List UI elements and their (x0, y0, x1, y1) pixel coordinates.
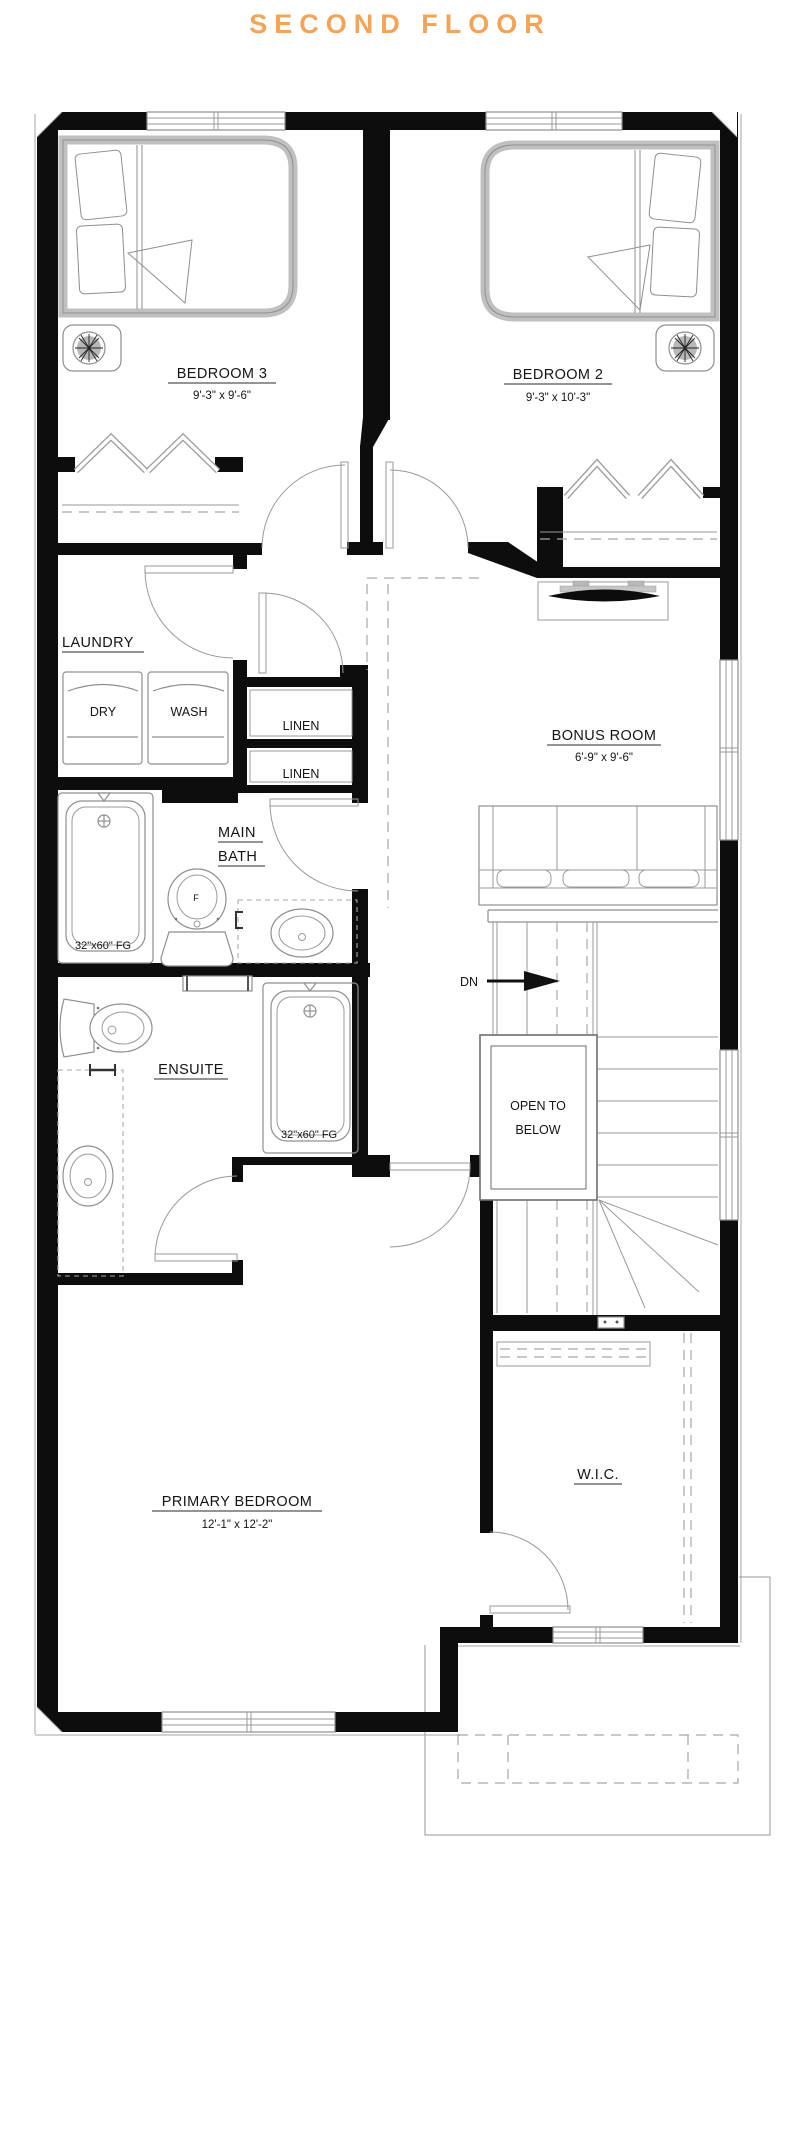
svg-text:32"x60" FG: 32"x60" FG (75, 940, 131, 952)
label-bedroom2: BEDROOM 2 9'-3" x 10'-3" (504, 367, 612, 404)
svg-text:MAIN: MAIN (218, 825, 256, 841)
label-linen-2: LINEN (283, 767, 320, 781)
label-primary-bedroom: PRIMARY BEDROOM 12'-1" x 12'-2" (152, 1494, 322, 1531)
svg-text:LINEN: LINEN (283, 767, 320, 781)
label-bedroom3: BEDROOM 3 9'-3" x 9'-6" (168, 366, 276, 402)
svg-text:WASH: WASH (170, 705, 207, 719)
door-bedroom2 (386, 462, 468, 548)
door-laundry (145, 566, 233, 658)
window-bedroom3 (147, 112, 285, 130)
svg-text:BELOW: BELOW (515, 1123, 560, 1137)
svg-text:6'-9" x 9'-6": 6'-9" x 9'-6" (575, 752, 633, 764)
svg-text:LAUNDRY: LAUNDRY (62, 635, 134, 651)
door-bath-hall (259, 593, 343, 673)
svg-text:OPEN TO: OPEN TO (510, 1099, 566, 1113)
svg-text:F: F (193, 893, 199, 903)
label-bonus-room: BONUS ROOM 6'-9" x 9'-6" (547, 728, 661, 764)
closet-bifold-doors (62, 437, 717, 539)
svg-text:LINEN: LINEN (283, 719, 320, 733)
label-dryer: DRY (90, 705, 117, 719)
svg-text:BONUS ROOM: BONUS ROOM (552, 728, 657, 744)
svg-text:DRY: DRY (90, 705, 117, 719)
label-dn: DN (460, 975, 478, 989)
door-bedroom3 (262, 462, 348, 548)
window-bonus-room (720, 660, 738, 840)
shared-wall-niche (183, 976, 252, 991)
label-laundry: LAUNDRY (62, 635, 144, 652)
door-main-bath (270, 799, 358, 891)
bifold-bedroom3 (76, 437, 218, 471)
window-wic (553, 1627, 643, 1643)
svg-text:W.I.C.: W.I.C. (577, 1467, 619, 1483)
stairs (367, 578, 718, 1315)
door-wic (490, 1532, 570, 1613)
ensuite-vanity (58, 1064, 123, 1276)
bifold-bedroom2 (566, 463, 702, 497)
label-ensuite: ENSUITE (154, 1062, 228, 1079)
window-primary-bedroom (162, 1712, 335, 1732)
main-bath-tub (58, 793, 153, 963)
svg-text:12'-1" x 12'-2": 12'-1" x 12'-2" (202, 1519, 273, 1531)
svg-text:BATH: BATH (218, 849, 257, 865)
label-washer: WASH (170, 705, 207, 719)
ceiling-fan-bedroom2 (656, 325, 714, 371)
ensuite-toilet (60, 999, 152, 1057)
label-main-bath: MAIN BATH (218, 825, 265, 866)
main-bath-vanity (236, 900, 357, 963)
page-title: SECOND FLOOR (249, 9, 551, 39)
bedroom2-bed (485, 145, 715, 317)
svg-text:PRIMARY BEDROOM: PRIMARY BEDROOM (162, 1494, 313, 1510)
floor-plan-canvas: SECOND FLOOR (0, 0, 800, 2150)
ceiling-fan-bedroom3 (63, 325, 121, 371)
label-tub-ensuite: 32"x60" FG (281, 1129, 337, 1141)
roof-below-outline (425, 1577, 770, 1835)
svg-text:DN: DN (460, 975, 478, 989)
bonus-tv-unit (538, 581, 668, 620)
svg-text:32"x60" FG: 32"x60" FG (281, 1129, 337, 1141)
window-stair (720, 1050, 738, 1220)
floor-plan: BEDROOM 3 9'-3" x 9'-6" BEDROOM 2 9'-3" … (35, 112, 770, 1835)
door-primary-bedroom (390, 1163, 470, 1247)
bonus-sofa (479, 806, 717, 905)
main-bath-toilet (161, 869, 233, 966)
bedroom3-bed (63, 140, 293, 313)
svg-text:9'-3" x 10'-3": 9'-3" x 10'-3" (526, 392, 590, 404)
label-toilet-symbol: F (193, 893, 199, 903)
open-to-below-box (480, 1035, 597, 1200)
label-tub-main: 32"x60" FG (75, 940, 131, 952)
window-bedroom2 (486, 112, 622, 130)
ensuite-tub (263, 983, 358, 1153)
svg-text:BEDROOM 3: BEDROOM 3 (177, 366, 268, 382)
label-wic: W.I.C. (574, 1467, 622, 1484)
door-ensuite (155, 1176, 237, 1261)
svg-text:BEDROOM 2: BEDROOM 2 (513, 367, 604, 383)
svg-text:9'-3" x 9'-6": 9'-3" x 9'-6" (193, 390, 251, 402)
stairs-down-arrow (487, 971, 560, 991)
label-linen-1: LINEN (283, 719, 320, 733)
svg-text:ENSUITE: ENSUITE (158, 1062, 224, 1078)
